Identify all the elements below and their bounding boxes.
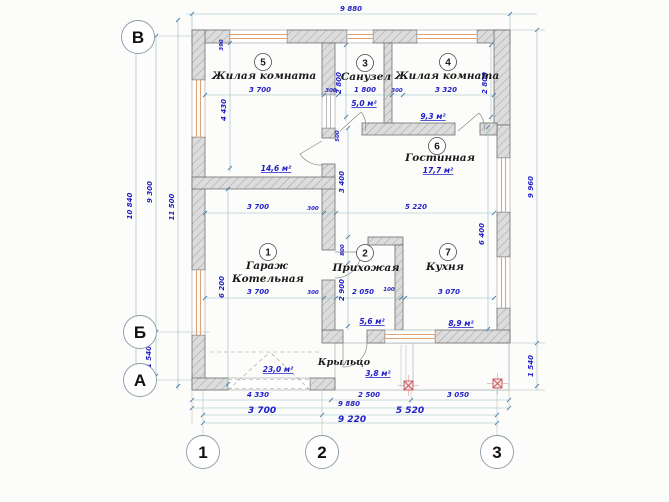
dim-top-total: 9 880 bbox=[340, 5, 362, 13]
dim-garage-height: 6 200 bbox=[218, 276, 226, 298]
room-4-number: 4 bbox=[445, 58, 451, 69]
dim-stub-offset: 800 bbox=[340, 244, 346, 256]
room-3-number: 3 bbox=[362, 59, 368, 70]
axis-row-bot-label: А bbox=[134, 371, 146, 390]
room-1-name-line1: Гараж bbox=[245, 260, 288, 272]
axis-col-2-label: 2 bbox=[317, 443, 326, 462]
axis-row-mid: Б bbox=[124, 316, 157, 349]
room-1-label: 1 Гараж Котельная 23,0 м² bbox=[231, 244, 304, 375]
room-4-name: Жилая комната bbox=[394, 70, 500, 82]
room-2-area: 5,6 м² bbox=[359, 317, 385, 326]
room-2-number: 2 bbox=[362, 249, 368, 260]
room-7-area: 8,9 м² bbox=[448, 319, 474, 328]
dim-bot-ax12: 3 700 bbox=[248, 406, 276, 416]
room-1-number: 1 bbox=[265, 248, 271, 259]
dim-garage-width: 3 700 bbox=[247, 288, 269, 296]
dim-gap-b: 300 bbox=[391, 88, 403, 94]
dim-right-total: 9 960 bbox=[527, 176, 535, 198]
dim-living-width: 5 220 bbox=[405, 203, 427, 211]
window-room5-top bbox=[230, 30, 287, 43]
window-kitchen-right bbox=[497, 257, 510, 308]
axis-col-3-label: 3 bbox=[492, 443, 501, 462]
room-3-area: 5,0 м² bbox=[351, 99, 377, 108]
walls bbox=[192, 30, 510, 390]
axis-row-bot: А bbox=[124, 364, 157, 397]
room-3-name: Санузел bbox=[341, 71, 391, 83]
room-2-name: Прихожая bbox=[331, 262, 399, 274]
room-7-number: 7 bbox=[445, 248, 451, 259]
dim-garage-width-inner: 3 700 bbox=[247, 203, 269, 211]
room-4-area: 9,3 м² bbox=[420, 112, 446, 121]
dim-gap-e: 300 bbox=[307, 290, 319, 296]
dim-right-porch: 1 540 bbox=[527, 355, 535, 377]
dim-r5-offset: 390 bbox=[219, 39, 225, 51]
window-kitchen-bottom bbox=[385, 330, 435, 343]
dim-bot-seg2: 2 500 bbox=[358, 391, 380, 399]
room-6-area: 17,7 м² bbox=[423, 166, 454, 175]
dim-bath-width: 1 800 bbox=[354, 86, 376, 94]
dim-bot-total: 9 880 bbox=[338, 400, 360, 408]
porch-label: Крыльцо 3,8 м² bbox=[317, 357, 391, 378]
room-7-name: Кухня bbox=[425, 261, 464, 273]
floor-plan-drawing: 9 880 390 3 700 300 1 800 300 3 320 2 80… bbox=[0, 0, 669, 502]
porch-area: 3,8 м² bbox=[365, 369, 391, 378]
dim-left-out: 10 840 bbox=[126, 192, 134, 219]
axis-row-top-label: В bbox=[132, 28, 144, 47]
axis-col-1: 1 bbox=[187, 436, 220, 469]
room-6-label: 6 Гостинная 17,7 м² bbox=[404, 138, 475, 176]
dim-kitchen-height: 6 400 bbox=[478, 223, 486, 245]
porch-name: Крыльцо bbox=[317, 357, 371, 368]
room-5-number: 5 bbox=[260, 58, 266, 69]
dim-bot-ax23: 5 520 bbox=[396, 406, 424, 416]
dim-left-far: 11 500 bbox=[168, 193, 176, 220]
dim-bot-ax13: 9 220 bbox=[338, 415, 366, 425]
dim-hall-width: 2 050 bbox=[352, 288, 374, 296]
dim-r4-width: 3 320 bbox=[435, 86, 457, 94]
window-garage-left bbox=[192, 270, 205, 335]
axis-col-3: 3 bbox=[481, 436, 514, 469]
dim-gap-c: 300 bbox=[307, 206, 319, 212]
room-7-label: 7 Кухня 8,9 м² bbox=[425, 244, 474, 329]
dim-kitchen-width: 3 070 bbox=[438, 288, 460, 296]
floor-plan-page: 9 880 390 3 700 300 1 800 300 3 320 2 80… bbox=[0, 0, 669, 502]
room-5-area: 14,6 м² bbox=[261, 164, 292, 173]
window-room4-top bbox=[417, 30, 477, 43]
room-5-name: Жилая комната bbox=[211, 70, 317, 82]
dim-left-in: 9 300 bbox=[146, 181, 154, 203]
room-labels: 5 Жилая комната 14,6 м² 3 Санузел 5,0 м²… bbox=[211, 54, 500, 379]
dim-gap-d: 100 bbox=[383, 287, 395, 293]
room-1-area: 23,0 м² bbox=[263, 365, 294, 374]
dim-bot-seg1: 4 330 bbox=[247, 391, 269, 399]
axis-row-mid-label: Б bbox=[134, 323, 146, 342]
dim-living-height: 3 400 bbox=[338, 171, 346, 193]
axis-col-2: 2 bbox=[306, 436, 339, 469]
dim-bot-seg3: 3 050 bbox=[447, 391, 469, 399]
axis-col-1-label: 1 bbox=[198, 443, 207, 462]
dim-r5-height: 4 430 bbox=[220, 99, 228, 121]
dim-r5-width: 3 700 bbox=[249, 86, 271, 94]
axis-row-top: В bbox=[122, 21, 155, 54]
room-1-name-line2: Котельная bbox=[231, 273, 304, 285]
duct-niche bbox=[322, 95, 335, 128]
room-6-name: Гостинная bbox=[404, 152, 475, 164]
window-living-right bbox=[497, 158, 510, 212]
porch-column-right bbox=[487, 373, 508, 394]
dim-door-offset: 500 bbox=[335, 130, 341, 142]
window-bath-top bbox=[347, 30, 373, 43]
window-room5-left bbox=[192, 80, 205, 137]
dim-hall-height: 2 900 bbox=[338, 279, 346, 301]
door-room5 bbox=[300, 141, 322, 165]
room-6-number: 6 bbox=[434, 142, 440, 153]
